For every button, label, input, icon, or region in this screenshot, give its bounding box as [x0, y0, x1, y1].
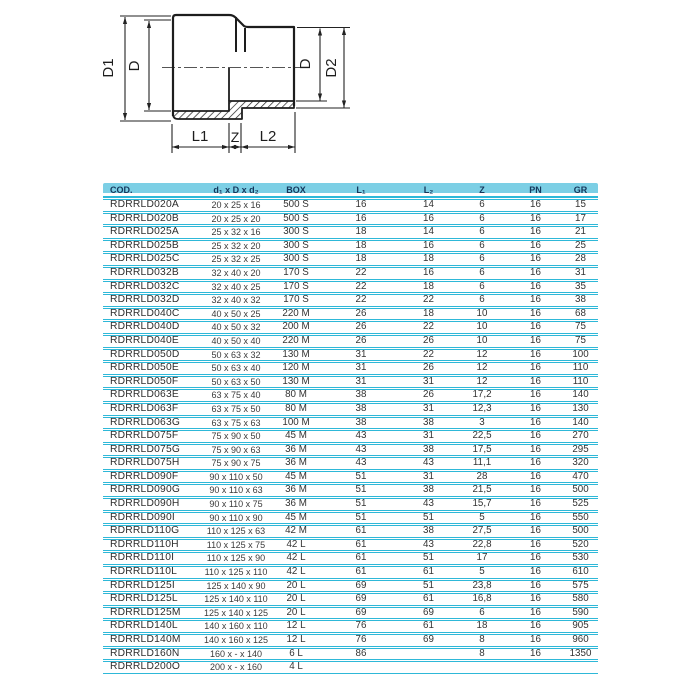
l2-cell: 16 [401, 213, 456, 226]
table-row: RDRRLD090H90 x 110 x 7536 M514315,716525 [103, 498, 598, 511]
l2-cell: 26 [401, 389, 456, 402]
arrowhead [318, 29, 322, 36]
pn-cell: 16 [508, 253, 563, 266]
column-header-pn: PN [508, 183, 563, 198]
label-d-right: D [297, 58, 314, 69]
l2-cell: 26 [401, 335, 456, 348]
z-cell: 27,5 [456, 525, 508, 538]
column-header-cod: COD. [103, 183, 201, 198]
l2-cell: 31 [401, 376, 456, 389]
pn-cell: 16 [508, 552, 563, 565]
box-cell: 100 M [271, 417, 321, 430]
l1-cell: 22 [321, 267, 401, 280]
l2-cell: 22 [401, 294, 456, 307]
l1-cell: 86 [321, 648, 401, 661]
z-cell: 16,8 [456, 593, 508, 606]
table-row: RDRRLD025A25 x 32 x 16300 S181461621 [103, 226, 598, 239]
dim-cell: 125 x 140 x 110 [201, 593, 271, 606]
z-cell: 22,5 [456, 430, 508, 443]
z-cell [456, 661, 508, 674]
box-cell: 12 L [271, 620, 321, 633]
gr-cell: 38 [563, 294, 598, 307]
box-cell: 45 M [271, 471, 321, 484]
dim-cell: 63 x 75 x 63 [201, 417, 271, 430]
l1-cell: 22 [321, 294, 401, 307]
l2-cell: 18 [401, 308, 456, 321]
dim-cell: 140 x 160 x 110 [201, 620, 271, 633]
l1-cell: 61 [321, 566, 401, 579]
arrowhead [234, 145, 241, 149]
dim-cell: 32 x 40 x 20 [201, 267, 271, 280]
dim-cell: 75 x 90 x 50 [201, 430, 271, 443]
z-cell: 15,7 [456, 498, 508, 511]
l2-cell: 16 [401, 267, 456, 280]
pn-cell: 16 [508, 335, 563, 348]
l2-cell: 22 [401, 321, 456, 334]
box-cell: 42 M [271, 525, 321, 538]
table-row: RDRRLD063G63 x 75 x 63100 M3838316140 [103, 417, 598, 430]
gr-cell: 25 [563, 240, 598, 253]
table-row: RDRRLD110H110 x 125 x 7542 L614322,81652… [103, 539, 598, 552]
gr-cell: 68 [563, 308, 598, 321]
pn-cell: 16 [508, 376, 563, 389]
table-row: RDRRLD075F75 x 90 x 5045 M433122,516270 [103, 430, 598, 443]
l1-cell: 51 [321, 484, 401, 497]
box-cell: 300 S [271, 226, 321, 239]
cod-cell: RDRRLD025B [103, 240, 201, 253]
l2-cell: 38 [401, 525, 456, 538]
l1-cell: 18 [321, 226, 401, 239]
box-cell: 45 M [271, 512, 321, 525]
l2-cell: 61 [401, 620, 456, 633]
z-cell: 5 [456, 566, 508, 579]
pn-cell: 16 [508, 294, 563, 307]
gr-cell: 590 [563, 607, 598, 620]
cod-cell: RDRRLD110G [103, 525, 201, 538]
l1-cell: 38 [321, 403, 401, 416]
l1-cell: 18 [321, 240, 401, 253]
dim-cell: 90 x 110 x 63 [201, 484, 271, 497]
arrowhead [342, 28, 346, 35]
pn-cell: 16 [508, 648, 563, 661]
box-cell: 36 M [271, 444, 321, 457]
gr-cell: 575 [563, 580, 598, 593]
gr-cell: 28 [563, 253, 598, 266]
dim-cell: 63 x 75 x 40 [201, 389, 271, 402]
dim-cell: 110 x 125 x 75 [201, 539, 271, 552]
l2-cell: 51 [401, 512, 456, 525]
l1-cell: 69 [321, 593, 401, 606]
l1-cell: 51 [321, 471, 401, 484]
cod-cell: RDRRLD090H [103, 498, 201, 511]
fitting-diagram: D1 D D D2 L1 Z L2 [0, 0, 400, 175]
z-cell: 28 [456, 471, 508, 484]
pn-cell: 16 [508, 525, 563, 538]
box-cell: 80 M [271, 403, 321, 416]
box-cell: 20 L [271, 580, 321, 593]
l1-cell: 31 [321, 349, 401, 362]
z-cell: 6 [456, 294, 508, 307]
box-cell: 36 M [271, 457, 321, 470]
table-row: RDRRLD110G110 x 125 x 6342 M613827,51650… [103, 525, 598, 538]
pn-cell: 16 [508, 308, 563, 321]
box-cell: 45 M [271, 430, 321, 443]
dim-cell: 110 x 125 x 90 [201, 552, 271, 565]
l2-cell: 38 [401, 484, 456, 497]
table-row: RDRRLD125M125 x 140 x 12520 L6969616590 [103, 607, 598, 620]
l1-cell: 38 [321, 417, 401, 430]
dim-cell: 140 x 160 x 125 [201, 634, 271, 647]
gr-cell: 35 [563, 281, 598, 294]
gr-cell: 15 [563, 199, 598, 212]
box-cell: 20 L [271, 607, 321, 620]
l1-cell: 43 [321, 430, 401, 443]
table-header-row: COD.d₁ x D x d₂BOXL₁L₂ZPNGR [103, 183, 598, 198]
dim-cell: 90 x 110 x 50 [201, 471, 271, 484]
pn-cell: 16 [508, 471, 563, 484]
gr-cell: 525 [563, 498, 598, 511]
z-cell: 3 [456, 417, 508, 430]
arrowhead [241, 145, 248, 149]
box-cell: 4 L [271, 661, 321, 674]
column-header-l1: L₁ [321, 183, 401, 198]
l1-cell: 61 [321, 552, 401, 565]
label-l1: L1 [192, 128, 209, 145]
gr-cell: 130 [563, 403, 598, 416]
z-cell: 17,2 [456, 389, 508, 402]
z-cell: 10 [456, 321, 508, 334]
l2-cell: 16 [401, 240, 456, 253]
dim-cell: 160 x - x 140 [201, 648, 271, 661]
l2-cell: 31 [401, 430, 456, 443]
l1-cell: 51 [321, 512, 401, 525]
z-cell: 23,8 [456, 580, 508, 593]
z-cell: 11,1 [456, 457, 508, 470]
gr-cell: 500 [563, 484, 598, 497]
cod-cell: RDRRLD090F [103, 471, 201, 484]
dim-cell: 200 x - x 160 [201, 661, 271, 674]
cod-cell: RDRRLD040D [103, 321, 201, 334]
cod-cell: RDRRLD075G [103, 444, 201, 457]
label-z: Z [231, 129, 240, 145]
table-row: RDRRLD063F63 x 75 x 5080 M383112,316130 [103, 403, 598, 416]
l1-cell: 26 [321, 308, 401, 321]
z-cell: 22,8 [456, 539, 508, 552]
cod-cell: RDRRLD025A [103, 226, 201, 239]
cod-cell: RDRRLD025C [103, 253, 201, 266]
dim-cell: 63 x 75 x 50 [201, 403, 271, 416]
gr-cell: 610 [563, 566, 598, 579]
z-cell: 6 [456, 226, 508, 239]
l2-cell: 61 [401, 566, 456, 579]
cod-cell: RDRRLD020B [103, 213, 201, 226]
l1-cell: 16 [321, 199, 401, 212]
dim-cell: 110 x 125 x 110 [201, 566, 271, 579]
arrowhead [342, 101, 346, 108]
table-row: RDRRLD020B20 x 25 x 20500 S161661617 [103, 213, 598, 226]
box-cell: 500 S [271, 199, 321, 212]
l2-cell: 69 [401, 634, 456, 647]
z-cell: 5 [456, 512, 508, 525]
l2-cell: 18 [401, 281, 456, 294]
l1-cell: 69 [321, 580, 401, 593]
gr-cell: 110 [563, 362, 598, 375]
l2-cell: 51 [401, 580, 456, 593]
box-cell: 12 L [271, 634, 321, 647]
column-header-z: Z [456, 183, 508, 198]
cod-cell: RDRRLD050E [103, 362, 201, 375]
cod-cell: RDRRLD200O [103, 661, 201, 674]
z-cell: 12,3 [456, 403, 508, 416]
pn-cell: 16 [508, 240, 563, 253]
table-row: RDRRLD032D32 x 40 x 32170 S222261638 [103, 294, 598, 307]
table-row: RDRRLD020A20 x 25 x 16500 S161461615 [103, 199, 598, 212]
l1-cell: 61 [321, 539, 401, 552]
pn-cell: 16 [508, 484, 563, 497]
arrowhead [318, 94, 322, 101]
cod-cell: RDRRLD032B [103, 267, 201, 280]
cod-cell: RDRRLD090I [103, 512, 201, 525]
cod-cell: RDRRLD110I [103, 552, 201, 565]
cod-cell: RDRRLD063E [103, 389, 201, 402]
cod-cell: RDRRLD110H [103, 539, 201, 552]
l2-cell: 31 [401, 471, 456, 484]
cod-cell: RDRRLD050F [103, 376, 201, 389]
l1-cell: 16 [321, 213, 401, 226]
gr-cell: 320 [563, 457, 598, 470]
z-cell: 6 [456, 199, 508, 212]
table-row: RDRRLD040D40 x 50 x 32200 M2622101675 [103, 321, 598, 334]
table-row: RDRRLD050F50 x 63 x 50130 M31311216110 [103, 376, 598, 389]
catalog-page: D1 D D D2 L1 Z L2 [0, 0, 700, 700]
cod-cell: RDRRLD125L [103, 593, 201, 606]
pn-cell: 16 [508, 620, 563, 633]
z-cell: 17 [456, 552, 508, 565]
box-cell: 120 M [271, 362, 321, 375]
column-header-dim: d₁ x D x d₂ [201, 183, 271, 198]
l1-cell: 43 [321, 444, 401, 457]
z-cell: 6 [456, 213, 508, 226]
box-cell: 500 S [271, 213, 321, 226]
table-row: RDRRLD025C25 x 32 x 25300 S181861628 [103, 253, 598, 266]
l1-cell: 43 [321, 457, 401, 470]
table-row: RDRRLD110I110 x 125 x 9042 L61511716530 [103, 552, 598, 565]
gr-cell: 75 [563, 321, 598, 334]
cod-cell: RDRRLD063F [103, 403, 201, 416]
gr-cell: 75 [563, 335, 598, 348]
pn-cell: 16 [508, 389, 563, 402]
table-row: RDRRLD110L110 x 125 x 11042 L6161516610 [103, 566, 598, 579]
box-cell: 300 S [271, 253, 321, 266]
arrowhead [123, 17, 127, 24]
l1-cell: 26 [321, 321, 401, 334]
l2-cell: 43 [401, 498, 456, 511]
z-cell: 6 [456, 253, 508, 266]
gr-cell: 530 [563, 552, 598, 565]
dim-cell: 75 x 90 x 63 [201, 444, 271, 457]
gr-cell: 17 [563, 213, 598, 226]
box-cell: 130 M [271, 376, 321, 389]
cod-cell: RDRRLD040C [103, 308, 201, 321]
gr-cell: 21 [563, 226, 598, 239]
l1-cell: 69 [321, 607, 401, 620]
column-header-gr: GR [563, 183, 598, 198]
table-row: RDRRLD032B32 x 40 x 20170 S221661631 [103, 267, 598, 280]
table-row: RDRRLD125L125 x 140 x 11020 L696116,8165… [103, 593, 598, 606]
cod-cell: RDRRLD040E [103, 335, 201, 348]
z-cell: 21,5 [456, 484, 508, 497]
box-cell: 80 M [271, 389, 321, 402]
table-row: RDRRLD090G90 x 110 x 6336 M513821,516500 [103, 484, 598, 497]
l1-cell: 51 [321, 498, 401, 511]
pn-cell: 16 [508, 457, 563, 470]
l2-cell [401, 648, 456, 661]
gr-cell: 580 [563, 593, 598, 606]
dim-cell: 75 x 90 x 75 [201, 457, 271, 470]
dimensions-table: COD.d₁ x D x d₂BOXL₁L₂ZPNGR RDRRLD020A20… [103, 182, 598, 675]
cod-cell: RDRRLD090G [103, 484, 201, 497]
l1-cell: 31 [321, 376, 401, 389]
z-cell: 6 [456, 281, 508, 294]
pn-cell: 16 [508, 403, 563, 416]
box-cell: 20 L [271, 593, 321, 606]
z-cell: 10 [456, 308, 508, 321]
cod-cell: RDRRLD075H [103, 457, 201, 470]
dim-cell: 20 x 25 x 20 [201, 213, 271, 226]
cod-cell: RDRRLD125I [103, 580, 201, 593]
l2-cell: 14 [401, 226, 456, 239]
box-cell: 170 S [271, 281, 321, 294]
z-cell: 6 [456, 267, 508, 280]
dim-cell: 32 x 40 x 32 [201, 294, 271, 307]
table-row: RDRRLD040E40 x 50 x 40220 M2626101675 [103, 335, 598, 348]
table-row: RDRRLD075H75 x 90 x 7536 M434311,116320 [103, 457, 598, 470]
arrowhead [123, 113, 127, 120]
dim-cell: 40 x 50 x 32 [201, 321, 271, 334]
l2-cell [401, 661, 456, 674]
box-cell: 220 M [271, 308, 321, 321]
box-cell: 170 S [271, 267, 321, 280]
pn-cell [508, 661, 563, 674]
pn-cell: 16 [508, 512, 563, 525]
z-cell: 8 [456, 648, 508, 661]
label-d1: D1 [100, 58, 117, 77]
pn-cell: 16 [508, 199, 563, 212]
l1-cell: 76 [321, 620, 401, 633]
dim-cell: 50 x 63 x 32 [201, 349, 271, 362]
gr-cell: 270 [563, 430, 598, 443]
label-d2: D2 [323, 58, 340, 77]
dim-cell: 90 x 110 x 75 [201, 498, 271, 511]
arrowhead [147, 21, 151, 28]
cod-cell: RDRRLD140M [103, 634, 201, 647]
pn-cell: 16 [508, 430, 563, 443]
l1-cell [321, 661, 401, 674]
pn-cell: 16 [508, 444, 563, 457]
box-cell: 42 L [271, 539, 321, 552]
section-hatch [173, 101, 294, 119]
dim-cell: 32 x 40 x 25 [201, 281, 271, 294]
dim-cell: 20 x 25 x 16 [201, 199, 271, 212]
l2-cell: 69 [401, 607, 456, 620]
pn-cell: 16 [508, 607, 563, 620]
l1-cell: 18 [321, 253, 401, 266]
l2-cell: 43 [401, 457, 456, 470]
gr-cell: 31 [563, 267, 598, 280]
l1-cell: 76 [321, 634, 401, 647]
pn-cell: 16 [508, 213, 563, 226]
gr-cell: 140 [563, 417, 598, 430]
pn-cell: 16 [508, 349, 563, 362]
box-cell: 170 S [271, 294, 321, 307]
dim-cell: 50 x 63 x 40 [201, 362, 271, 375]
table-row: RDRRLD040C40 x 50 x 25220 M2618101668 [103, 308, 598, 321]
dim-cell: 125 x 140 x 125 [201, 607, 271, 620]
l2-cell: 43 [401, 539, 456, 552]
table-row: RDRRLD160N160 x - x 1406 L868161350 [103, 648, 598, 661]
table-row: RDRRLD140M140 x 160 x 12512 L7669816960 [103, 634, 598, 647]
box-cell: 42 L [271, 566, 321, 579]
box-cell: 130 M [271, 349, 321, 362]
gr-cell [563, 661, 598, 674]
pn-cell: 16 [508, 580, 563, 593]
box-cell: 36 M [271, 484, 321, 497]
table-row: RDRRLD125I125 x 140 x 9020 L695123,81657… [103, 580, 598, 593]
box-cell: 220 M [271, 335, 321, 348]
pn-cell: 16 [508, 267, 563, 280]
table-row: RDRRLD025B25 x 32 x 20300 S181661625 [103, 240, 598, 253]
dim-cell: 25 x 32 x 16 [201, 226, 271, 239]
pn-cell: 16 [508, 634, 563, 647]
pn-cell: 16 [508, 362, 563, 375]
label-l2: L2 [260, 128, 277, 145]
box-cell: 36 M [271, 498, 321, 511]
gr-cell: 960 [563, 634, 598, 647]
l2-cell: 38 [401, 417, 456, 430]
box-cell: 6 L [271, 648, 321, 661]
label-d-left: D [126, 60, 143, 71]
dim-cell: 125 x 140 x 90 [201, 580, 271, 593]
z-cell: 12 [456, 376, 508, 389]
l1-cell: 38 [321, 389, 401, 402]
dim-cell: 90 x 110 x 90 [201, 512, 271, 525]
cod-cell: RDRRLD075F [103, 430, 201, 443]
table-row: RDRRLD090F90 x 110 x 5045 M51312816470 [103, 471, 598, 484]
l2-cell: 31 [401, 403, 456, 416]
pn-cell: 16 [508, 539, 563, 552]
dim-cell: 50 x 63 x 50 [201, 376, 271, 389]
z-cell: 17,5 [456, 444, 508, 457]
column-header-box: BOX [271, 183, 321, 198]
pn-cell: 16 [508, 498, 563, 511]
table-row: RDRRLD090I90 x 110 x 9045 M5151516550 [103, 512, 598, 525]
z-cell: 6 [456, 240, 508, 253]
z-cell: 10 [456, 335, 508, 348]
gr-cell: 500 [563, 525, 598, 538]
table-body: RDRRLD020A20 x 25 x 16500 S161461615RDRR… [103, 199, 598, 674]
arrowhead [172, 145, 179, 149]
pn-cell: 16 [508, 226, 563, 239]
arrowhead [288, 145, 295, 149]
cod-cell: RDRRLD032D [103, 294, 201, 307]
box-cell: 300 S [271, 240, 321, 253]
gr-cell: 100 [563, 349, 598, 362]
gr-cell: 110 [563, 376, 598, 389]
table-row: RDRRLD063E63 x 75 x 4080 M382617,216140 [103, 389, 598, 402]
dim-cell: 110 x 125 x 63 [201, 525, 271, 538]
z-cell: 8 [456, 634, 508, 647]
column-header-l2: L₂ [401, 183, 456, 198]
